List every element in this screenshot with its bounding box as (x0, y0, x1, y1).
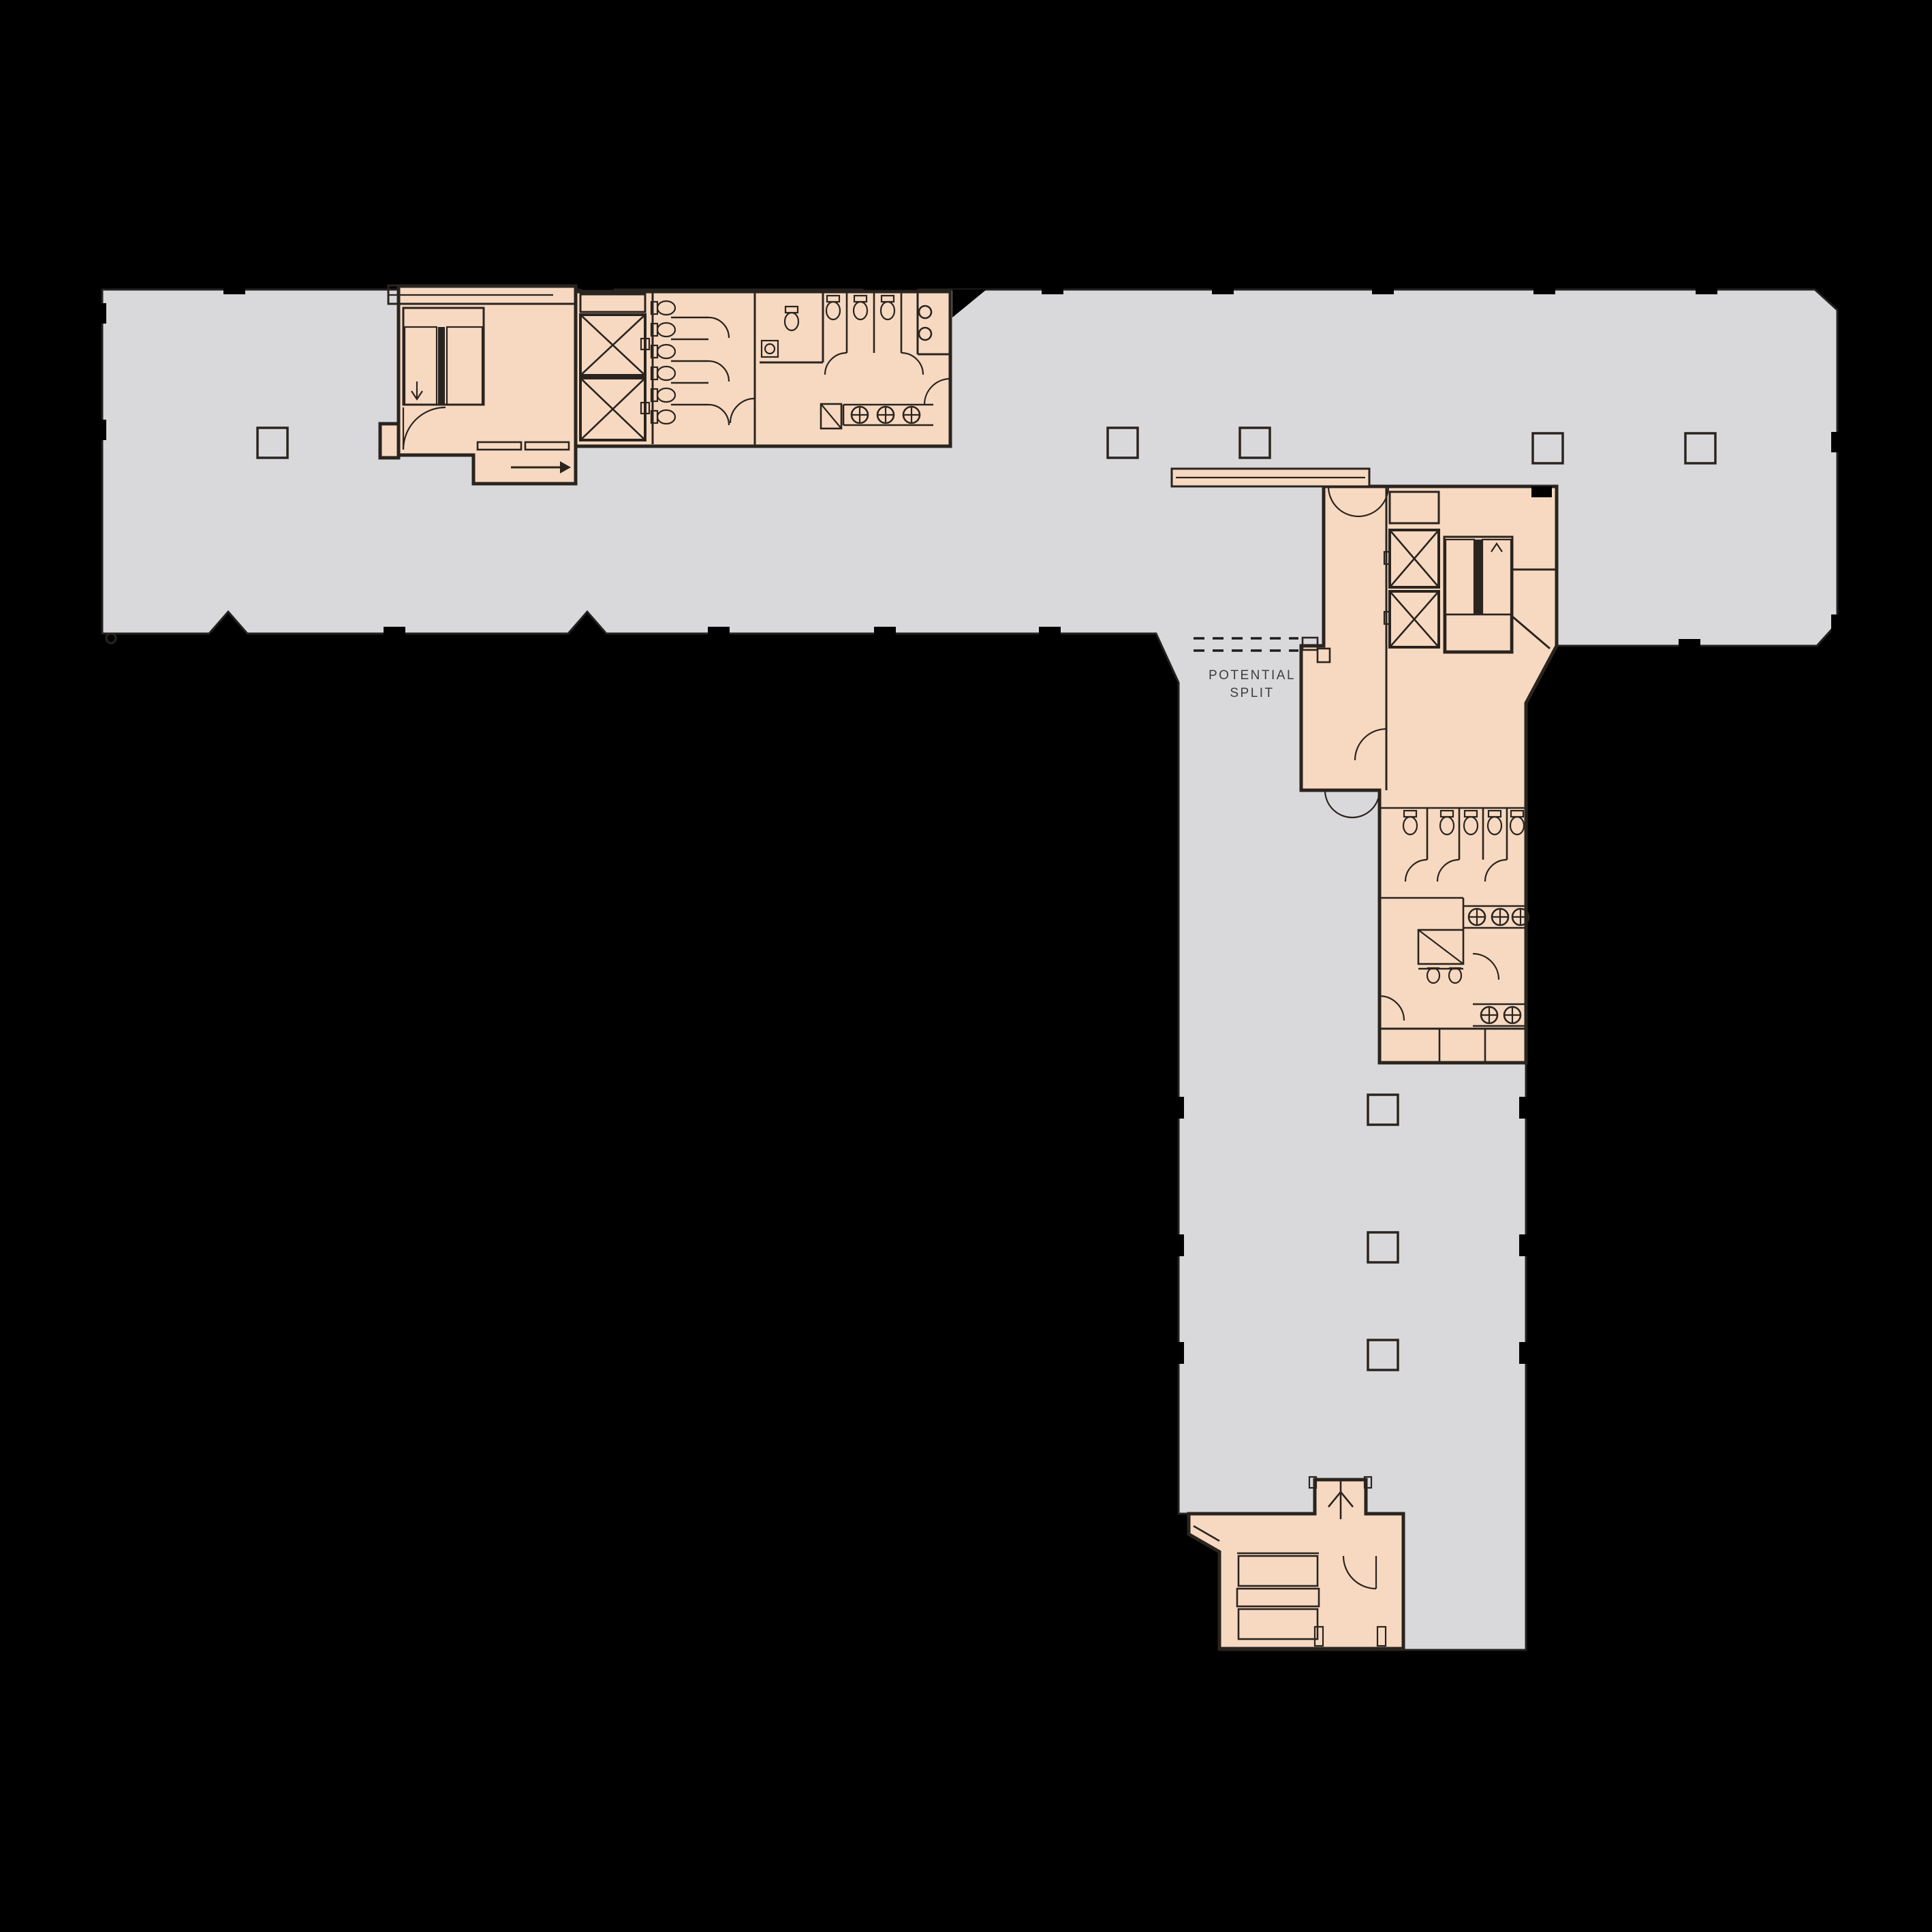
west-stair-core (399, 286, 576, 484)
west-stair-rail (438, 327, 445, 405)
potential-split-label-line1: POTENTIAL (1209, 668, 1296, 683)
potential-split-label-line2: SPLIT (1230, 686, 1274, 700)
floor-plan-page: POTENTIAL SPLIT (0, 0, 1932, 1932)
floor-plan-svg: POTENTIAL SPLIT (0, 0, 1932, 1932)
west-core-bumpout (380, 424, 399, 458)
east-stair-rail (1475, 540, 1482, 614)
edge-line (140, 643, 320, 646)
